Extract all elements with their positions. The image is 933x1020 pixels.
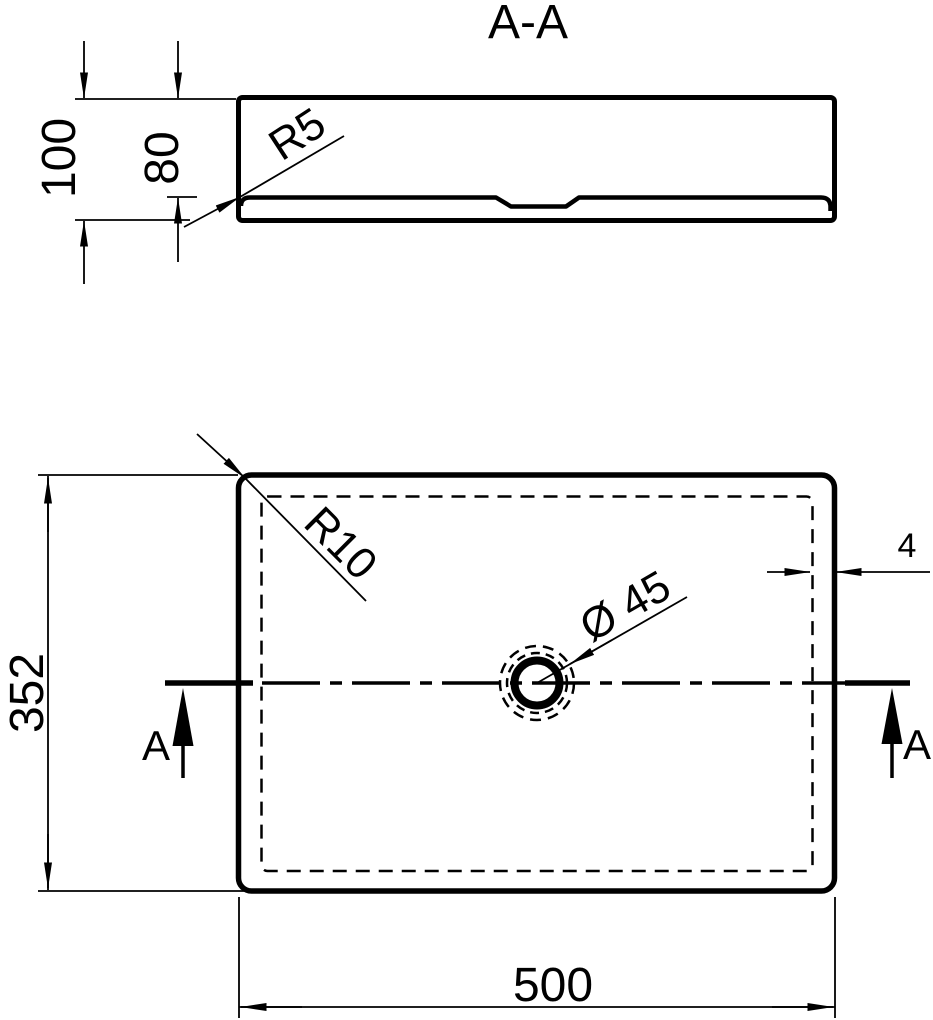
section-marker-left-label: A <box>142 722 170 769</box>
label-drain-diameter: Ø 45 <box>572 561 679 651</box>
section-title: A-A <box>488 0 568 49</box>
section-marker-right-label: A <box>903 721 931 768</box>
dim-length: 500 <box>513 959 593 1012</box>
r5-leader <box>184 136 344 227</box>
section-arrow-right <box>882 688 903 778</box>
section-outer-profile <box>239 98 835 221</box>
dim-wall-thickness: 4 <box>898 527 917 565</box>
label-fillet-radius: R5 <box>260 99 334 171</box>
dim-width: 352 <box>1 653 54 733</box>
label-corner-radius: R10 <box>295 497 387 589</box>
section-arrow-left <box>173 688 194 778</box>
dim-total-height: 100 <box>33 118 86 198</box>
plan-view <box>38 434 930 1018</box>
dim-inner-depth: 80 <box>136 131 189 184</box>
technical-drawing-sink: A-A 100 80 R5 <box>0 0 933 1020</box>
drawing-svg: A-A 100 80 R5 <box>0 0 933 1020</box>
section-inner-bottom-line <box>241 198 831 212</box>
